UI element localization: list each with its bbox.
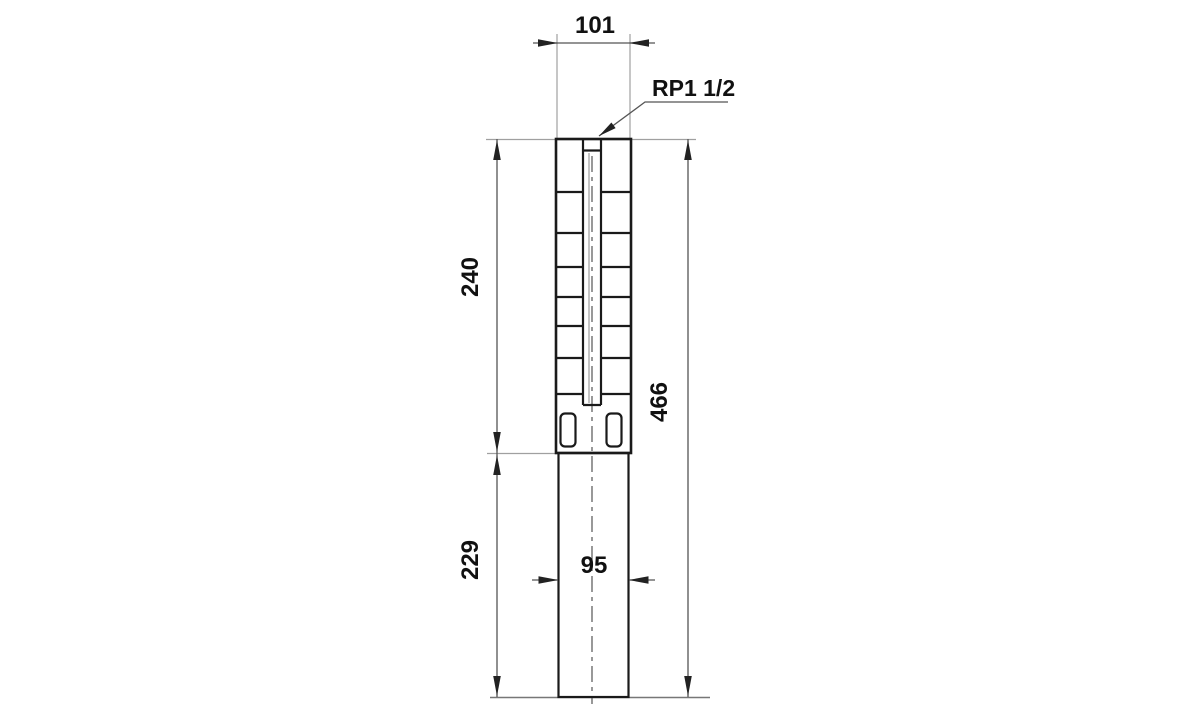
leader-line [599,102,728,136]
pump-body [556,139,631,453]
arrowhead-right-icon [538,39,558,47]
arrowhead-left-icon [629,576,649,584]
dimension-top-width: 101 [533,12,655,47]
dimension-label-total-height: 466 [646,382,673,422]
dimension-label-upper-height: 240 [457,257,484,297]
arrowhead-down-icon [684,676,692,696]
leader-arrowhead-icon [599,123,616,137]
dimension-label-top-width: 101 [575,12,615,39]
suction-slot-right [607,414,622,447]
arrowhead-up-icon [493,455,501,475]
arrowhead-down-icon [493,676,501,696]
connection-label: RP1 1/2 [652,75,735,101]
connection-callout: RP1 1/2 [599,75,735,136]
dimension-label-lower-height: 229 [457,540,484,580]
dimension-label-bottom-width: 95 [581,552,608,579]
dimension-upper-height: 240 [457,139,501,453]
drawing-canvas: 101 95 240 229 466 [0,0,1200,709]
suction-slot-left [561,414,576,447]
extension-lines [486,34,710,698]
dimension-total-height: 466 [646,139,692,697]
impeller-stage-dividers [556,192,631,394]
technical-drawing-page: 101 95 240 229 466 [0,0,1200,709]
arrowhead-up-icon [684,140,692,160]
dimension-bottom-width: 95 [532,552,655,584]
dimension-lower-height: 229 [457,453,501,697]
arrowhead-left-icon [629,39,649,47]
arrowhead-down-icon [493,432,501,452]
arrowhead-right-icon [539,576,559,584]
arrowhead-up-icon [493,140,501,160]
